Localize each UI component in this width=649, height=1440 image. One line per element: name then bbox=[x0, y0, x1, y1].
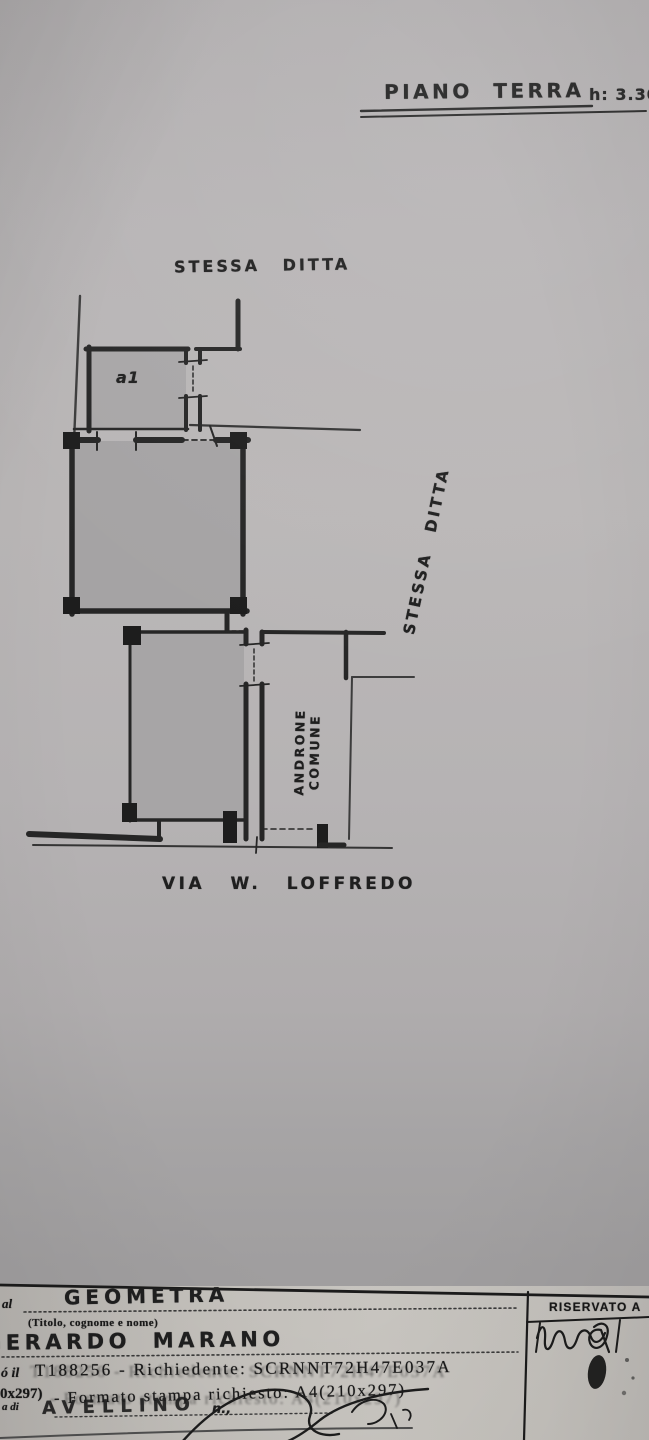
ink-blot bbox=[586, 1354, 609, 1390]
signature-stroke-3 bbox=[352, 1400, 386, 1424]
ink-speck-3 bbox=[622, 1391, 626, 1395]
handwritten-overlay bbox=[0, 0, 649, 1440]
signature-stroke-2 bbox=[182, 1390, 339, 1440]
ink-speck-2 bbox=[631, 1376, 634, 1379]
signature-marks bbox=[391, 1410, 411, 1428]
scanned-floor-plan-page: PIANO TERRA h: 3.30 STESSA DITTA a1 STES… bbox=[0, 0, 649, 1440]
ink-speck-1 bbox=[625, 1358, 629, 1362]
